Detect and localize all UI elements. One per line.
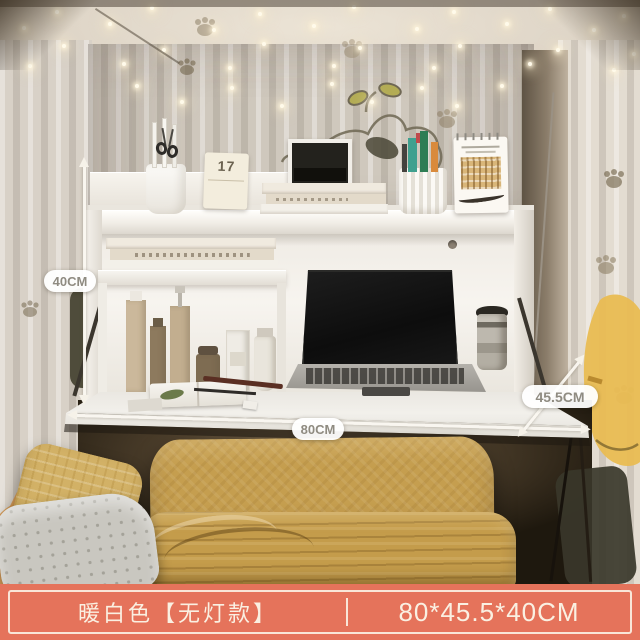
cat-doodle-glasses bbox=[363, 133, 402, 163]
calendar-title-line bbox=[466, 151, 496, 154]
clock-display bbox=[294, 168, 346, 181]
width-dimension-label: 80CM bbox=[292, 418, 344, 440]
star-light-icon bbox=[458, 44, 462, 48]
laptop-keys bbox=[306, 368, 464, 384]
arrowhead-left-icon bbox=[67, 410, 77, 420]
marker-pen bbox=[408, 138, 417, 172]
paw-print-decoration bbox=[596, 255, 616, 274]
depth-dimension-label: 45.5CM bbox=[522, 385, 598, 408]
star-light-icon bbox=[452, 10, 456, 14]
organizer-side bbox=[98, 283, 107, 395]
flip-card-day: 17 bbox=[217, 158, 235, 175]
star-light-icon bbox=[505, 22, 509, 26]
ribbed-pen-cup bbox=[399, 168, 447, 214]
marker-pen bbox=[416, 133, 420, 143]
book bbox=[260, 204, 388, 214]
star-light-icon bbox=[455, 104, 459, 108]
star-light-icon bbox=[212, 28, 216, 32]
folded-chair-shadow bbox=[554, 465, 638, 590]
star-light-icon bbox=[280, 104, 284, 108]
calendar-spiral bbox=[456, 133, 504, 141]
banner-frame: 暖白色【无灯款】 80*45.5*40CM bbox=[8, 590, 632, 634]
star-light-icon bbox=[358, 46, 362, 50]
laptop-screen bbox=[302, 270, 458, 366]
pen-cup bbox=[146, 164, 186, 214]
flip-card-divider bbox=[208, 179, 244, 181]
coffee-tumbler bbox=[477, 314, 507, 370]
hutch-side-right bbox=[514, 210, 534, 402]
paw-print-decoration bbox=[604, 169, 624, 188]
retro-clock bbox=[288, 139, 352, 187]
cosmetic-cap bbox=[130, 291, 142, 301]
variant-label: 暖白色【无灯款】 bbox=[10, 592, 346, 632]
calendar-gondola bbox=[458, 190, 505, 205]
book bbox=[266, 194, 386, 204]
star-light-icon bbox=[122, 62, 126, 66]
star-light-icon bbox=[330, 82, 334, 86]
book bbox=[110, 249, 274, 260]
marker-pen bbox=[420, 131, 428, 172]
star-light-icon bbox=[230, 86, 234, 90]
arrowhead-down-icon bbox=[79, 395, 89, 405]
paw-print-decoration bbox=[21, 300, 38, 317]
star-light-icon bbox=[500, 84, 504, 88]
desk-calendar bbox=[453, 137, 508, 214]
product-photo-bed-desk: 17 bbox=[0, 0, 640, 640]
folded-blanket bbox=[142, 512, 516, 588]
star-light-icon bbox=[180, 100, 184, 104]
star-light-icon bbox=[332, 64, 336, 68]
arrowhead-right-icon bbox=[581, 424, 591, 434]
star-light-icon bbox=[258, 12, 262, 16]
note-card bbox=[128, 398, 163, 412]
calendar-title-line bbox=[461, 146, 499, 149]
star-light-icon bbox=[432, 66, 436, 70]
tube-cap bbox=[257, 328, 273, 337]
star-light-icon bbox=[370, 100, 374, 104]
star-light-icon bbox=[262, 42, 266, 46]
star-light-icon bbox=[420, 86, 424, 90]
pump-nozzle bbox=[175, 286, 185, 293]
cosmetic-pump-bottle bbox=[170, 306, 190, 390]
star-light-icon bbox=[135, 84, 139, 88]
notebook-spine bbox=[197, 382, 200, 406]
pump-stem bbox=[178, 292, 182, 307]
calendar-picture bbox=[461, 157, 502, 190]
star-light-icon bbox=[415, 27, 419, 31]
cosmetic-cap bbox=[153, 318, 163, 327]
cosmetic-bottle bbox=[150, 326, 166, 390]
organizer-shelf-board bbox=[98, 270, 286, 285]
book bbox=[106, 238, 276, 249]
corner-shadow-left bbox=[0, 0, 110, 70]
marker-pen bbox=[402, 144, 407, 172]
book bbox=[262, 183, 386, 194]
corner-shadow-right bbox=[520, 0, 640, 70]
jar-lid bbox=[198, 346, 218, 355]
marker-pen bbox=[431, 142, 438, 172]
laptop-touchpad bbox=[362, 387, 410, 396]
date-flip-card: 17 bbox=[203, 152, 249, 210]
cosmetic-spray bbox=[126, 300, 146, 392]
star-light-icon bbox=[312, 24, 316, 28]
bottle-label bbox=[230, 352, 246, 366]
product-info-banner: 暖白色【无灯款】 80*45.5*40CM bbox=[0, 584, 640, 640]
arrowhead-up-icon bbox=[79, 157, 89, 167]
height-dimension-label: 40CM bbox=[44, 270, 96, 292]
star-light-icon bbox=[228, 66, 232, 70]
size-label: 80*45.5*40CM bbox=[348, 592, 630, 632]
organizer-side bbox=[277, 283, 286, 395]
